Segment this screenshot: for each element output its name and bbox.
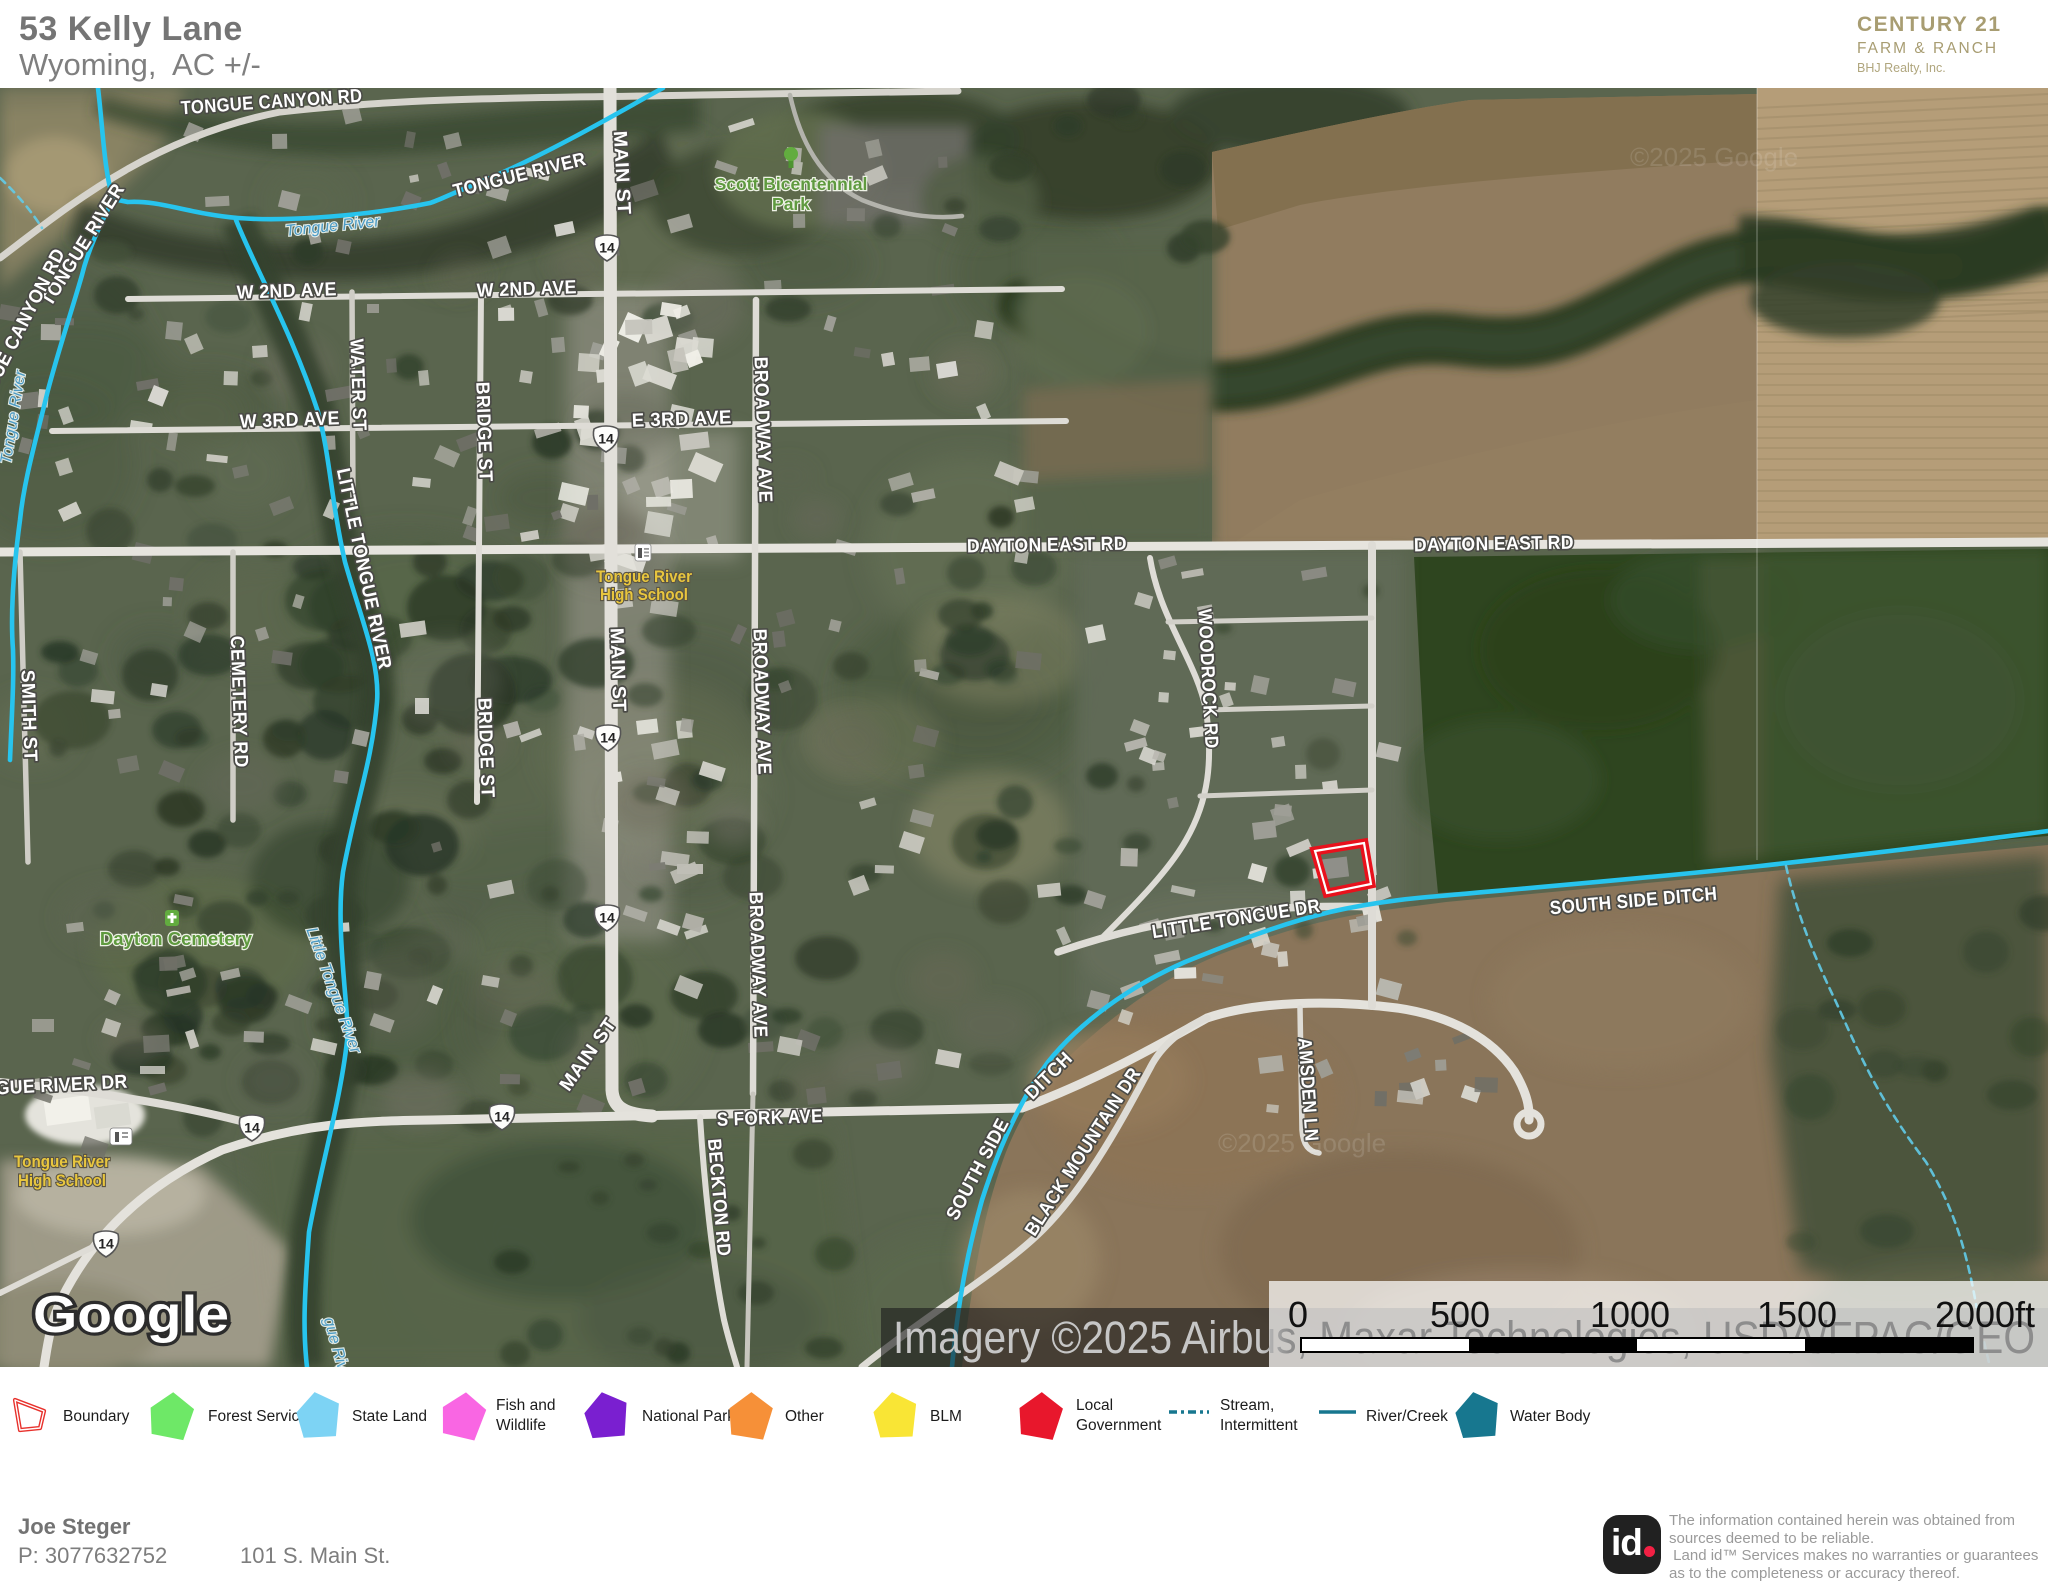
svg-text:DAYTON EAST RD: DAYTON EAST RD: [1414, 533, 1574, 557]
svg-text:Tongue River: Tongue River: [14, 1153, 111, 1171]
svg-text:Scott Bicentennial: Scott Bicentennial: [715, 174, 868, 194]
svg-text:14: 14: [600, 730, 616, 746]
svg-text:Forest Service: Forest Service: [208, 1408, 308, 1425]
svg-text:MAIN ST: MAIN ST: [609, 130, 634, 215]
svg-text:River/Creek: River/Creek: [1366, 1408, 1448, 1425]
svg-text:©2025 Google: ©2025 Google: [1218, 1128, 1386, 1158]
svg-text:MAIN ST: MAIN ST: [606, 627, 630, 712]
svg-text:Park: Park: [772, 194, 810, 214]
svg-text:Dayton Cemetery: Dayton Cemetery: [100, 928, 253, 949]
svg-text:W 2ND AVE: W 2ND AVE: [236, 279, 337, 303]
svg-text:WATER ST: WATER ST: [345, 338, 369, 431]
svg-text:©2025 Google: ©2025 Google: [1630, 142, 1798, 172]
svg-text:High School: High School: [18, 1172, 106, 1190]
svg-text:14: 14: [494, 1109, 510, 1125]
svg-text:Fish and: Fish and: [496, 1397, 555, 1414]
svg-text:W 2ND AVE: W 2ND AVE: [476, 277, 577, 301]
svg-text:Government: Government: [1076, 1417, 1162, 1434]
svg-text:Local: Local: [1076, 1397, 1113, 1414]
svg-text:Water Body: Water Body: [1510, 1408, 1591, 1425]
svg-text:14: 14: [599, 240, 615, 256]
svg-text:State Land: State Land: [352, 1408, 427, 1425]
svg-text:Stream,: Stream,: [1220, 1397, 1274, 1414]
svg-text:14: 14: [599, 910, 615, 926]
svg-text:BLM: BLM: [930, 1408, 962, 1425]
svg-text:1000: 1000: [1590, 1294, 1670, 1335]
svg-text:Tongue River: Tongue River: [596, 568, 693, 586]
svg-text:500: 500: [1430, 1294, 1490, 1335]
svg-text:Intermittent: Intermittent: [1220, 1417, 1298, 1434]
svg-text:W 3RD AVE: W 3RD AVE: [239, 408, 340, 432]
svg-text:BRIDGE ST: BRIDGE ST: [473, 697, 497, 798]
svg-text:2000ft: 2000ft: [1935, 1294, 2035, 1335]
svg-text:Google: Google: [33, 1286, 229, 1344]
svg-text:DAYTON EAST RD: DAYTON EAST RD: [967, 534, 1127, 558]
svg-text:S FORK AVE: S FORK AVE: [716, 1106, 823, 1131]
svg-text:Boundary: Boundary: [63, 1408, 130, 1425]
svg-text:Other: Other: [785, 1408, 824, 1425]
svg-text:Wildlife: Wildlife: [496, 1417, 546, 1434]
svg-text:High School: High School: [600, 586, 688, 604]
svg-text:14: 14: [98, 1236, 114, 1252]
svg-text:BRIDGE ST: BRIDGE ST: [471, 381, 495, 482]
svg-text:SMITH ST: SMITH ST: [16, 669, 40, 762]
svg-text:14: 14: [598, 431, 614, 447]
svg-text:14: 14: [244, 1120, 260, 1136]
svg-text:1500: 1500: [1757, 1294, 1837, 1335]
svg-text:National Park: National Park: [642, 1408, 735, 1425]
svg-text:0: 0: [1288, 1294, 1308, 1335]
svg-text:E 3RD AVE: E 3RD AVE: [631, 407, 732, 431]
